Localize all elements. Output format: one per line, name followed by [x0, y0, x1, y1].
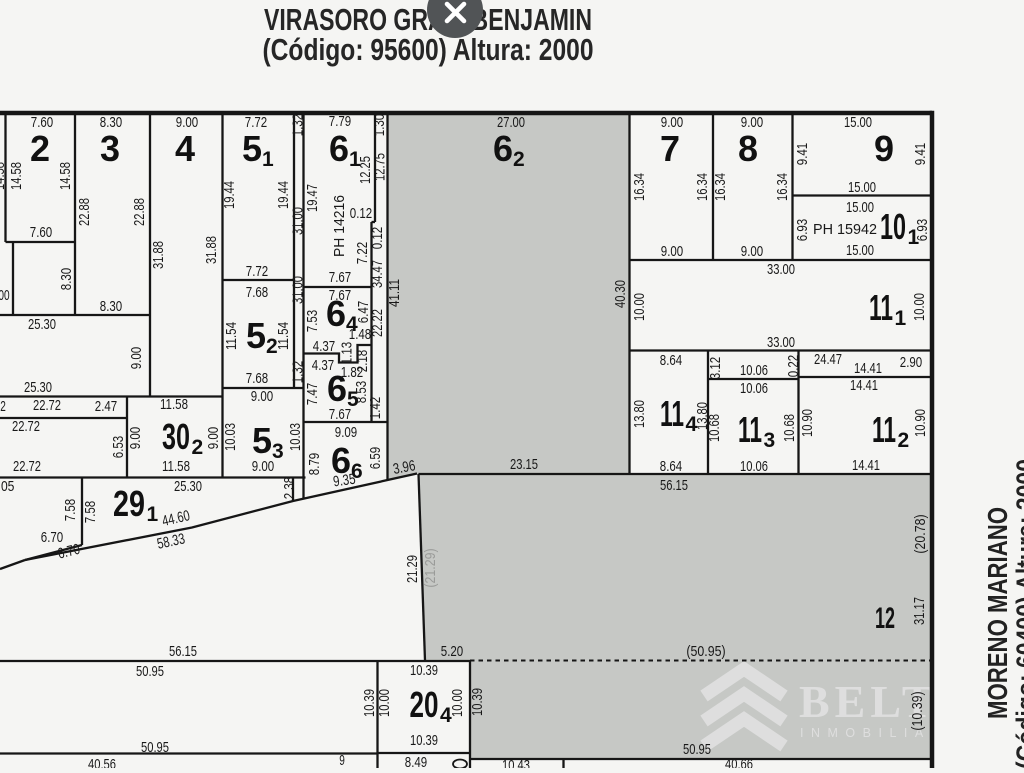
svg-text:19.44: 19.44	[221, 181, 238, 209]
svg-text:9: 9	[339, 752, 345, 768]
svg-text:25.30: 25.30	[174, 478, 202, 495]
svg-text:40.56: 40.56	[88, 756, 116, 768]
svg-text:7.67: 7.67	[329, 287, 351, 304]
svg-text:7.68: 7.68	[246, 284, 268, 301]
svg-text:1: 1	[262, 148, 274, 171]
svg-text:16.34: 16.34	[774, 173, 791, 201]
svg-text:10.00: 10.00	[631, 293, 648, 321]
svg-text:8.49: 8.49	[405, 754, 427, 768]
svg-text:2: 2	[192, 436, 204, 459]
svg-text:9.00: 9.00	[741, 114, 763, 131]
svg-text:10.03: 10.03	[222, 423, 239, 451]
svg-text:9.09: 9.09	[335, 424, 357, 441]
svg-text:8.79: 8.79	[306, 453, 323, 475]
svg-text:23.15: 23.15	[510, 456, 538, 473]
svg-text:0.12: 0.12	[369, 227, 386, 249]
svg-text:9.00: 9.00	[205, 427, 222, 449]
svg-text:3: 3	[764, 429, 776, 452]
svg-text:2: 2	[30, 128, 50, 169]
svg-text:31.88: 31.88	[203, 236, 220, 264]
svg-text:5: 5	[242, 128, 262, 169]
svg-text:50.95: 50.95	[136, 663, 164, 680]
svg-text:8.30: 8.30	[100, 298, 122, 315]
svg-text:6.70: 6.70	[41, 529, 63, 546]
svg-text:14.41: 14.41	[850, 377, 878, 394]
svg-text:11: 11	[872, 409, 896, 450]
svg-text:5: 5	[246, 315, 266, 356]
svg-text:50.95: 50.95	[141, 739, 169, 756]
svg-text:7.47: 7.47	[304, 383, 321, 405]
svg-text:11.58: 11.58	[162, 458, 190, 475]
svg-text:10.68: 10.68	[706, 414, 723, 442]
svg-text:16.34: 16.34	[712, 173, 729, 201]
svg-text:2: 2	[898, 429, 910, 452]
svg-text:31.17: 31.17	[911, 597, 928, 625]
svg-text:22.72: 22.72	[33, 397, 61, 414]
svg-text:21.29: 21.29	[404, 555, 421, 583]
svg-text:0.12: 0.12	[350, 205, 372, 222]
svg-text:11: 11	[660, 393, 684, 434]
svg-text:8: 8	[738, 128, 758, 169]
svg-text:6.93: 6.93	[914, 219, 931, 241]
svg-text:15.00: 15.00	[844, 114, 872, 131]
svg-text:7.60: 7.60	[30, 224, 52, 241]
svg-text:7.79: 7.79	[329, 113, 351, 130]
svg-text:12.75: 12.75	[372, 153, 389, 181]
svg-text:.05: .05	[0, 478, 14, 495]
svg-text:10.39: 10.39	[410, 732, 438, 749]
svg-text:50.95: 50.95	[683, 741, 711, 758]
svg-text:7.72: 7.72	[246, 263, 268, 280]
svg-text:6.93: 6.93	[794, 219, 811, 241]
svg-text:00: 00	[0, 287, 10, 304]
svg-text:14.58: 14.58	[0, 162, 8, 190]
svg-text:33.00: 33.00	[767, 334, 795, 351]
svg-text:16.34: 16.34	[631, 173, 648, 201]
svg-text:19.47: 19.47	[304, 184, 321, 212]
svg-text:10.06: 10.06	[740, 458, 768, 475]
svg-text:9.00: 9.00	[661, 243, 683, 260]
svg-text:6.59: 6.59	[367, 447, 384, 469]
svg-text:1.30: 1.30	[371, 114, 388, 136]
svg-text:16.34: 16.34	[694, 173, 711, 201]
svg-text:40.66: 40.66	[725, 756, 753, 768]
svg-text:19.44: 19.44	[275, 181, 292, 209]
svg-text:8.30: 8.30	[58, 268, 75, 290]
svg-text:22.22: 22.22	[369, 309, 386, 337]
svg-text:31.00: 31.00	[290, 276, 307, 304]
svg-text:7.53: 7.53	[304, 310, 321, 332]
svg-text:11: 11	[869, 287, 893, 328]
svg-text:9.00: 9.00	[661, 114, 683, 131]
svg-text:2: 2	[0, 398, 6, 415]
svg-text:1.32: 1.32	[290, 114, 307, 136]
svg-text:10.90: 10.90	[912, 409, 929, 437]
svg-text:15.00: 15.00	[846, 199, 874, 216]
svg-text:0.22: 0.22	[785, 355, 802, 377]
svg-text:10.00: 10.00	[449, 689, 466, 717]
svg-text:2.18: 2.18	[354, 350, 371, 372]
svg-text:(Código: 60400) Altura: 2000: (Código: 60400) Altura: 2000	[1011, 459, 1024, 768]
svg-text:5.20: 5.20	[441, 643, 463, 660]
svg-text:56.15: 56.15	[660, 477, 688, 494]
svg-text:6: 6	[329, 128, 349, 169]
svg-text:9.35: 9.35	[332, 471, 357, 491]
svg-text:1: 1	[147, 503, 159, 526]
svg-text:31.88: 31.88	[150, 241, 167, 269]
svg-text:40.30: 40.30	[612, 280, 629, 308]
svg-text:10: 10	[880, 206, 906, 247]
svg-text:12: 12	[875, 602, 895, 635]
svg-text:11.54: 11.54	[223, 322, 240, 350]
svg-text:9.00: 9.00	[252, 458, 274, 475]
svg-text:14.58: 14.58	[57, 162, 74, 190]
svg-text:10.43: 10.43	[502, 757, 530, 768]
svg-text:22.88: 22.88	[131, 198, 148, 226]
svg-text:41.11: 41.11	[386, 279, 403, 307]
svg-text:22.72: 22.72	[13, 458, 41, 475]
svg-text:3: 3	[100, 128, 120, 169]
svg-text:15.00: 15.00	[846, 242, 874, 259]
svg-text:(Código: 95600) Altura: 2000: (Código: 95600) Altura: 2000	[263, 32, 594, 67]
svg-text:8.30: 8.30	[100, 114, 122, 131]
svg-text:7.67: 7.67	[329, 406, 351, 423]
svg-text:1.48: 1.48	[349, 326, 371, 343]
svg-text:3.12: 3.12	[707, 357, 724, 379]
svg-text:9.00: 9.00	[176, 114, 198, 131]
svg-text:10.00: 10.00	[376, 689, 393, 717]
svg-text:10.90: 10.90	[799, 409, 816, 437]
svg-text:10.68: 10.68	[781, 414, 798, 442]
svg-text:9.00: 9.00	[128, 347, 145, 369]
svg-text:7.72: 7.72	[245, 114, 267, 131]
svg-text:7.58: 7.58	[62, 499, 79, 521]
svg-text:14.58: 14.58	[8, 162, 25, 190]
svg-text:9.00: 9.00	[251, 388, 273, 405]
svg-text:56.15: 56.15	[169, 643, 197, 660]
svg-text:10.03: 10.03	[287, 423, 304, 451]
svg-text:9.41: 9.41	[794, 143, 811, 165]
svg-text:(20.78): (20.78)	[912, 514, 929, 553]
svg-text:MORENO MARIANO: MORENO MARIANO	[982, 507, 1013, 719]
svg-text:1: 1	[895, 307, 907, 330]
svg-text:22.72: 22.72	[12, 418, 40, 435]
svg-text:8.64: 8.64	[660, 352, 682, 369]
svg-text:(10.39): (10.39)	[909, 691, 926, 730]
svg-text:1.32: 1.32	[290, 361, 307, 383]
svg-text:22.88: 22.88	[76, 198, 93, 226]
svg-text:2.47: 2.47	[95, 398, 117, 415]
svg-text:29: 29	[113, 483, 145, 524]
svg-text:5: 5	[252, 420, 272, 461]
svg-text:PH 14216: PH 14216	[331, 195, 348, 257]
svg-text:13.80: 13.80	[631, 400, 648, 428]
svg-text:9.41: 9.41	[912, 143, 929, 165]
svg-text:8.64: 8.64	[660, 458, 682, 475]
svg-text:30: 30	[162, 416, 190, 457]
svg-text:(50.95): (50.95)	[686, 643, 725, 660]
svg-text:14.41: 14.41	[854, 360, 882, 377]
svg-text:10.39: 10.39	[410, 662, 438, 679]
svg-text:9: 9	[874, 128, 894, 169]
svg-text:7.58: 7.58	[82, 501, 99, 523]
svg-text:PH 15942: PH 15942	[813, 221, 877, 238]
svg-text:34.47: 34.47	[369, 260, 386, 288]
svg-text:4.37: 4.37	[313, 338, 335, 355]
svg-text:11.54: 11.54	[275, 322, 292, 350]
svg-text:1.42: 1.42	[367, 397, 384, 419]
svg-text:7.68: 7.68	[246, 370, 268, 387]
svg-text:2.38: 2.38	[281, 477, 298, 499]
svg-text:11: 11	[738, 409, 762, 450]
svg-text:7.60: 7.60	[31, 114, 53, 131]
svg-text:4: 4	[175, 128, 195, 169]
svg-text:7.67: 7.67	[329, 269, 351, 286]
svg-text:6: 6	[493, 128, 513, 169]
svg-text:11.58: 11.58	[160, 396, 188, 413]
svg-text:6.53: 6.53	[110, 436, 127, 458]
svg-text:10.39: 10.39	[469, 688, 486, 716]
svg-text:7: 7	[660, 128, 680, 169]
svg-text:14.41: 14.41	[852, 457, 880, 474]
svg-text:10.00: 10.00	[911, 293, 928, 321]
svg-text:(21.29): (21.29)	[422, 548, 439, 587]
svg-text:1.13: 1.13	[339, 342, 356, 364]
svg-text:2.90: 2.90	[900, 354, 922, 371]
svg-text:33.00: 33.00	[767, 261, 795, 278]
svg-text:4.37: 4.37	[312, 357, 334, 374]
svg-text:10.06: 10.06	[740, 380, 768, 397]
svg-text:25.30: 25.30	[28, 316, 56, 333]
svg-text:2: 2	[513, 148, 525, 171]
svg-text:20: 20	[410, 684, 439, 725]
svg-text:10.06: 10.06	[740, 362, 768, 379]
svg-text:9.00: 9.00	[741, 243, 763, 260]
svg-text:24.47: 24.47	[814, 351, 842, 368]
svg-text:9.00: 9.00	[127, 427, 144, 449]
svg-text:15.00: 15.00	[848, 179, 876, 196]
svg-text:25.30: 25.30	[24, 379, 52, 396]
svg-text:27.00: 27.00	[497, 114, 525, 131]
